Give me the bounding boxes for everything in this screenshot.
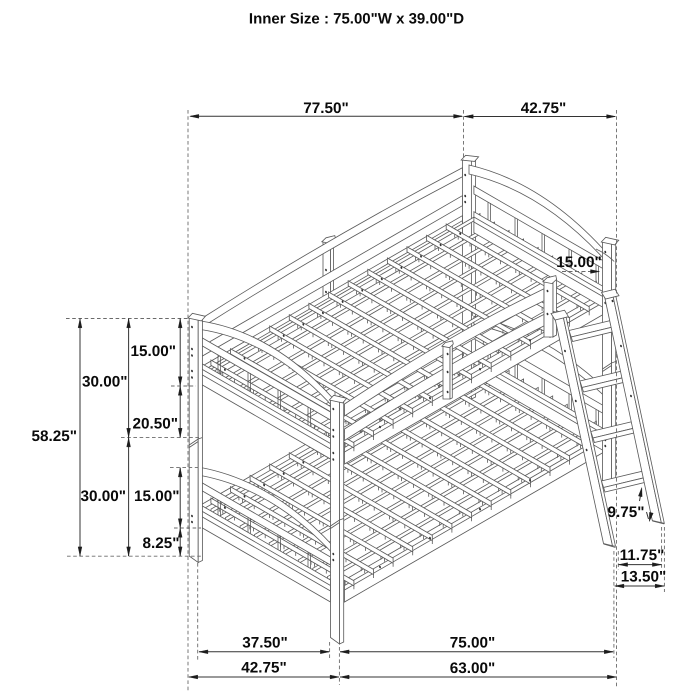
svg-text:11.75": 11.75" (620, 547, 665, 564)
svg-text:15.00": 15.00" (134, 488, 180, 505)
svg-text:37.50": 37.50" (242, 635, 288, 652)
svg-text:13.50": 13.50" (621, 569, 667, 586)
svg-text:42.75": 42.75" (521, 100, 567, 117)
svg-text:58.25": 58.25" (31, 428, 77, 445)
svg-text:77.50": 77.50" (303, 100, 349, 117)
svg-text:15.00": 15.00" (130, 343, 176, 360)
svg-text:20.50": 20.50" (132, 416, 178, 433)
svg-text:30.00": 30.00" (82, 374, 128, 391)
svg-text:42.75": 42.75" (241, 660, 287, 677)
svg-text:30.00": 30.00" (80, 488, 126, 505)
svg-text:15.00": 15.00" (556, 254, 602, 271)
svg-text:8.25": 8.25" (142, 535, 179, 552)
svg-text:9.75": 9.75" (607, 504, 644, 521)
svg-text:63.00": 63.00" (450, 660, 496, 677)
svg-text:75.00": 75.00" (450, 635, 496, 652)
svg-text:Inner Size : 75.00"W x 39.00"D: Inner Size : 75.00"W x 39.00"D (249, 11, 464, 28)
